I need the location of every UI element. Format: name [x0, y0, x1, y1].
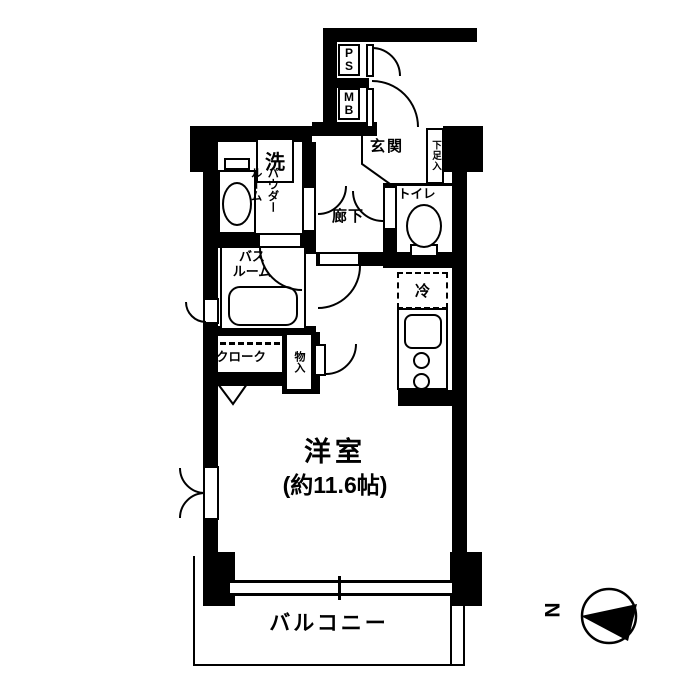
hallway-door-leaf — [318, 252, 360, 266]
compass-circle — [582, 589, 636, 643]
cloak-hanger-rail — [220, 342, 280, 345]
compass-north-wedge — [581, 604, 637, 641]
shoe-cabinet-label: 下足入 — [428, 140, 442, 172]
entrance-door-leaf — [366, 88, 374, 128]
shoe-cabinet-box: 下足入 — [426, 128, 444, 184]
trunk-door-arc-top — [180, 468, 205, 493]
refrigerator-box: 冷 — [397, 272, 448, 309]
storage-door-arc — [326, 344, 356, 374]
cloak-label: クローク — [216, 350, 266, 364]
refrigerator-label: 冷 — [415, 280, 430, 301]
toilet-door-leaf — [383, 186, 397, 230]
bathroom-label: バス ルーム — [222, 250, 282, 280]
storage-door-leaf — [314, 344, 326, 376]
balcony-label: バルコニー — [193, 612, 465, 636]
pipe-space-label: PS — [343, 47, 356, 72]
wall-psmb-left — [323, 28, 337, 136]
stove-burner-2 — [413, 373, 430, 390]
trunk-door-arc-bottom — [180, 493, 205, 518]
powder-door-leaf — [302, 186, 316, 232]
entrance-door-arc — [372, 81, 418, 127]
toilet-label: トイレ — [398, 187, 436, 201]
ps-door-arc — [372, 48, 400, 76]
meter-box-label: MB — [343, 91, 356, 116]
storage-label: 物入 — [291, 351, 307, 373]
hallway-label: 廊下 — [332, 208, 364, 225]
ps-door-leaf — [366, 44, 374, 77]
main-room-size-label: (約11.6帖) — [225, 472, 445, 498]
wall-entry-right-block — [443, 126, 483, 172]
stove-burner-1 — [413, 352, 430, 369]
cloak-folding-door — [218, 384, 247, 404]
wall-psmb-divider — [337, 78, 369, 88]
entrance-label: 玄関 — [370, 138, 404, 155]
storage-box: 物入 — [286, 334, 312, 390]
trunk-door-box — [203, 466, 219, 520]
bathtub — [228, 286, 298, 326]
service-hatch-box — [203, 298, 219, 324]
wall-closet-bottom — [210, 372, 286, 386]
compass-north-label: N — [542, 602, 566, 617]
floor-plan: PS MB 下足入 洗 物入 冷 — [0, 0, 700, 700]
pipe-space-box: PS — [338, 44, 360, 76]
meter-box-box: MB — [338, 88, 360, 120]
powder-room-label: パウダー ルーム — [247, 167, 280, 227]
balcony-outline — [193, 556, 465, 666]
toilet-bowl — [406, 204, 442, 248]
hallway-door-arc — [318, 266, 360, 308]
wall-right — [452, 168, 467, 562]
main-room-label: 洋室 — [225, 437, 445, 468]
wall-top — [323, 28, 477, 42]
kitchen-sink — [404, 314, 442, 349]
wall-kitchen-bottom — [398, 390, 467, 406]
